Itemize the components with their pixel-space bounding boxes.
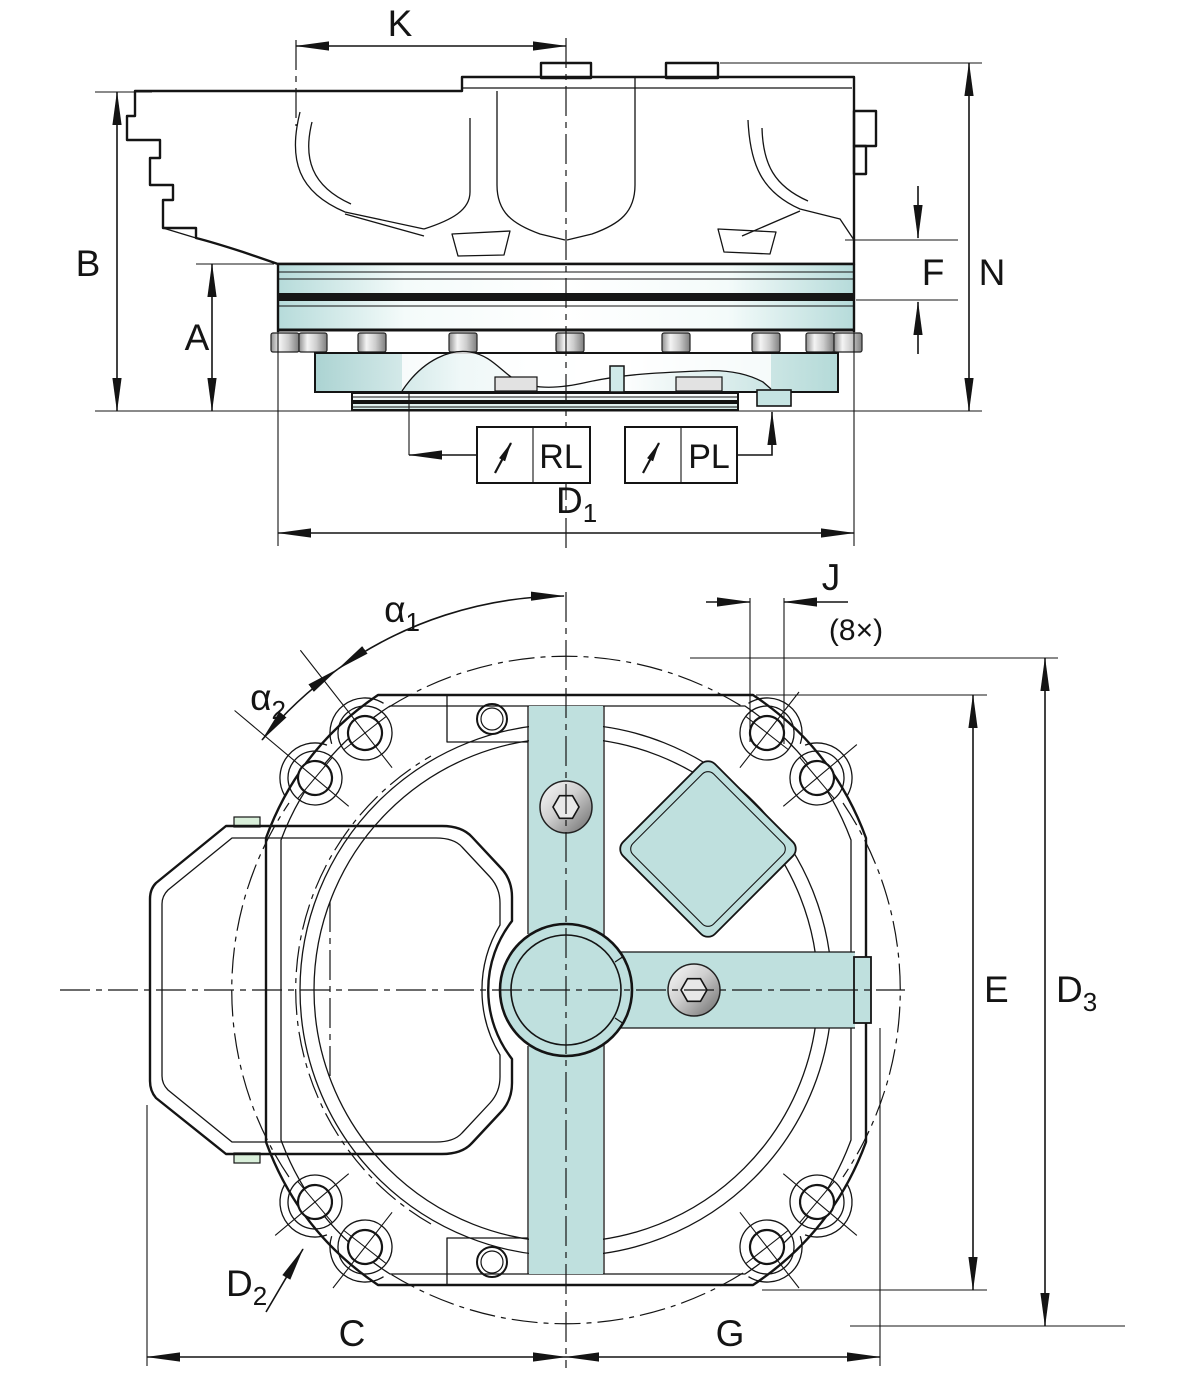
dim-label-G: G: [716, 1313, 745, 1354]
dim-label-B: B: [76, 243, 101, 284]
technical-drawing-page: K B A F N D1 RL PL: [0, 0, 1200, 1380]
dim-label-N: N: [979, 252, 1006, 293]
rl-label: RL: [539, 438, 582, 476]
technical-drawing: K B A F N D1 RL PL: [0, 0, 1200, 1380]
bolt-head: [806, 333, 834, 352]
dim-label-C: C: [339, 1313, 366, 1354]
bolt-head: [449, 333, 477, 352]
base-plate: [352, 393, 738, 410]
sensor-tab: [610, 366, 624, 392]
dim-label-J: J: [822, 557, 841, 598]
pl-label: PL: [688, 438, 730, 476]
dim-label-K: K: [388, 3, 413, 44]
bolt-head: [752, 333, 780, 352]
dim-label-E: E: [984, 969, 1009, 1010]
bolt-head: [271, 333, 299, 352]
dim-label-F: F: [922, 252, 945, 293]
bolt-head: [834, 333, 862, 352]
dim-label-J-count: (8×): [829, 614, 883, 647]
mount-foot: [757, 390, 791, 406]
bolt-head: [358, 333, 386, 352]
bolt-head: [556, 333, 584, 352]
bolt-head: [662, 333, 690, 352]
bolt-head: [299, 333, 327, 352]
dim-label-A: A: [185, 317, 210, 358]
